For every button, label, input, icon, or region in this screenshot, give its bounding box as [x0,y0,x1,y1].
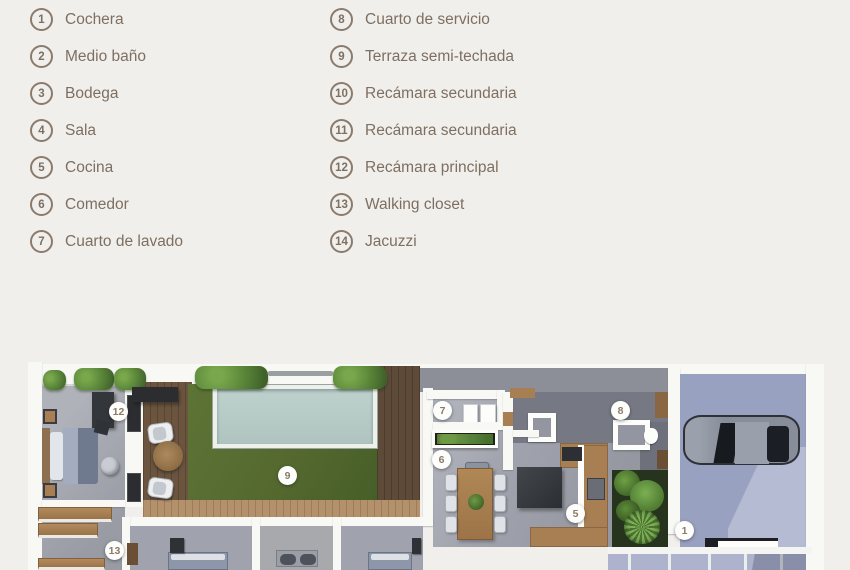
plan-marker-6: 6 [432,450,451,469]
closet-cabinet [38,507,112,522]
shadow [718,554,806,570]
interior-wall-top [420,368,680,392]
legend-label: Cocina [65,159,113,177]
legend-number-badge: 7 [30,230,53,253]
plan-marker-7: 7 [433,401,452,420]
shower-enclosure [528,413,556,442]
legend-label: Walking closet [365,196,464,214]
legend-label: Terraza semi-techada [365,48,514,66]
legend-number-badge: 4 [30,119,53,142]
plan-marker-5: 5 [566,504,585,523]
wood-trim [655,392,668,418]
pool [213,385,377,448]
double-sink-counter [276,550,318,567]
cooktop [587,478,605,500]
legend-label: Medio baño [65,48,146,66]
patio-table [153,441,183,471]
terrace-deck [377,366,420,517]
legend-label: Comedor [65,196,129,214]
legend-number-badge: 3 [30,82,53,105]
wood-trim [510,388,535,398]
dresser [170,538,184,553]
paver-joint [628,554,631,570]
legend-item-cochera: 1 Cochera [30,8,183,31]
dining-chair [494,516,506,533]
legend-item-recamara-secundaria-1: 10 Recámara secundaria [330,82,517,105]
legend-number-badge: 5 [30,156,53,179]
closet-cabinet [38,558,105,570]
service-room-wall [503,392,513,470]
legend-column-left: 1 Cochera 2 Medio baño 3 Bodega 4 Sala 5… [30,8,183,267]
lounge-chair [147,476,175,499]
legend-column-right: 8 Cuarto de servicio 9 Terraza semi-tech… [330,8,517,267]
garage-wall [668,368,680,534]
bedroom-wall [252,517,260,570]
closet-wall [42,500,125,507]
legend-label: Recámara secundaria [365,122,517,140]
kitchen-appliance [562,447,582,461]
dining-chair [494,495,506,512]
plan-marker-13: 13 [105,541,124,560]
paver-joint [708,554,711,570]
plan-marker-9: 9 [278,466,297,485]
bedroom-wall [128,517,433,526]
pillow [371,554,409,560]
legend-number-badge: 11 [330,119,353,142]
pool-rail [268,371,333,376]
pillow [171,554,225,560]
pillow [50,432,63,480]
legend-label: Sala [65,122,96,140]
hedge [43,370,66,390]
legend-number-badge: 6 [30,193,53,216]
terrace-deck [143,500,420,517]
door [657,450,668,469]
legend-item-cuarto-de-lavado: 7 Cuarto de lavado [30,230,183,253]
dresser [412,538,421,554]
closet-cabinet [38,523,98,538]
laundry-shelf [433,422,505,430]
legend-number-badge: 12 [330,156,353,179]
bed-headboard [42,428,50,484]
legend-item-recamara-principal: 12 Recámara principal [330,156,517,179]
legend-item-medio-bano: 2 Medio baño [30,45,183,68]
legend-label: Recámara secundaria [365,85,517,103]
bedroom-wall [333,517,341,570]
hedge [195,366,268,389]
plan-marker-1: 1 [675,521,694,540]
legend-item-recamara-secundaria-2: 11 Recámara secundaria [330,119,517,142]
legend-label: Cochera [65,11,124,29]
bed [368,552,412,570]
dining-chair [445,474,457,491]
exterior-wall-left [28,362,42,570]
nightstand [43,409,57,424]
legend-item-sala: 4 Sala [30,119,183,142]
legend-number-badge: 8 [330,8,353,31]
plan-marker-8: 8 [611,401,630,420]
kitchen-island [517,467,562,508]
bed [168,552,228,570]
dining-chair [445,495,457,512]
legend-item-bodega: 3 Bodega [30,82,183,105]
legend-label: Cuarto de servicio [365,11,490,29]
door [127,543,138,565]
legend-number-badge: 1 [30,8,53,31]
legend-item-terraza: 9 Terraza semi-techada [330,45,517,68]
page: { "legend": { "left": [ {"number": "1", … [0,0,850,570]
plan-marker-12: 12 [109,402,128,421]
legend-label: Bodega [65,85,118,103]
window [127,473,141,502]
legend-number-badge: 2 [30,45,53,68]
palm-plant [624,510,660,544]
kitchen-counter [530,527,608,547]
sink [300,554,316,565]
laundry-wall [427,390,505,399]
car-rear-window [767,426,789,462]
table-plant [468,494,484,510]
hedge [333,366,387,389]
legend-item-cocina: 5 Cocina [30,156,183,179]
hedge [74,368,114,390]
plants [437,434,493,444]
floor-plan: 12 9 7 6 8 5 1 13 [28,362,824,570]
wood-trim [503,412,513,426]
legend-item-comedor: 6 Comedor [30,193,183,216]
nightstand [43,483,57,498]
legend-label: Recámara principal [365,159,499,177]
dining-chair [445,516,457,533]
legend-item-walking-closet: 13 Walking closet [330,193,517,216]
legend-label: Jacuzzi [365,233,417,251]
legend-item-cuarto-de-servicio: 8 Cuarto de servicio [330,8,517,31]
sink [280,554,296,565]
partition-wall [513,430,539,437]
bed-blanket [78,428,98,484]
dining-chair [494,474,506,491]
car-roof [735,422,769,464]
paver-joint [668,554,671,570]
legend-number-badge: 13 [330,193,353,216]
legend-number-badge: 9 [330,45,353,68]
legend-label: Cuarto de lavado [65,233,183,251]
ottoman [101,457,119,475]
toilet [644,428,658,444]
legend-number-badge: 10 [330,82,353,105]
pergola-shade [132,387,178,402]
planter-box [432,430,498,448]
exterior-wall-right [806,364,824,570]
legend-number-badge: 14 [330,230,353,253]
sidewalk [608,547,812,554]
legend-item-jacuzzi: 14 Jacuzzi [330,230,517,253]
